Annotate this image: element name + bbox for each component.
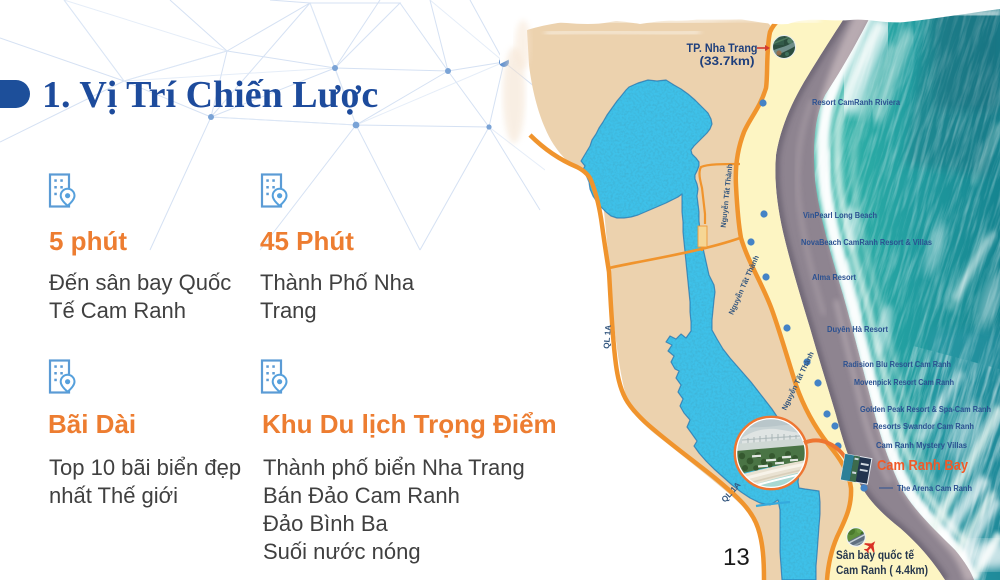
- svg-text:Sân bay quốc tế: Sân bay quốc tế: [836, 548, 914, 562]
- svg-text:Duyên Hà Resort: Duyên Hà Resort: [827, 325, 888, 334]
- svg-text:The Arena Cam Ranh: The Arena Cam Ranh: [897, 484, 972, 493]
- svg-text:Cam Ranh ( 4.4km): Cam Ranh ( 4.4km): [836, 563, 928, 577]
- svg-text:(33.7km): (33.7km): [700, 56, 755, 68]
- svg-text:Resorts Swandor Cam Ranh: Resorts Swandor Cam Ranh: [873, 422, 974, 431]
- svg-text:Resort CamRanh Riviera: Resort CamRanh Riviera: [812, 98, 901, 107]
- svg-text:VinPearl Long Beach: VinPearl Long Beach: [803, 211, 877, 220]
- svg-text:Movenpick Resort Cam Ranh: Movenpick Resort Cam Ranh: [854, 378, 954, 387]
- svg-text:Cam Ranh Bay: Cam Ranh Bay: [877, 457, 969, 474]
- svg-text:Alma Resort: Alma Resort: [812, 273, 856, 282]
- svg-text:NovaBeach CamRanh Resort & Vil: NovaBeach CamRanh Resort & Villas: [801, 238, 933, 247]
- svg-text:Cam Ranh Mystery Villas: Cam Ranh Mystery Villas: [876, 441, 968, 450]
- svg-text:TP. Nha Trang: TP. Nha Trang: [687, 43, 758, 55]
- svg-text:Radision Blu Resort Cam Ranh: Radision Blu Resort Cam Ranh: [843, 360, 951, 369]
- svg-text:Golden Peak Resort & Spa-Cam R: Golden Peak Resort & Spa-Cam Ranh: [860, 405, 991, 414]
- svg-text:QL 1A: QL 1A: [602, 324, 613, 349]
